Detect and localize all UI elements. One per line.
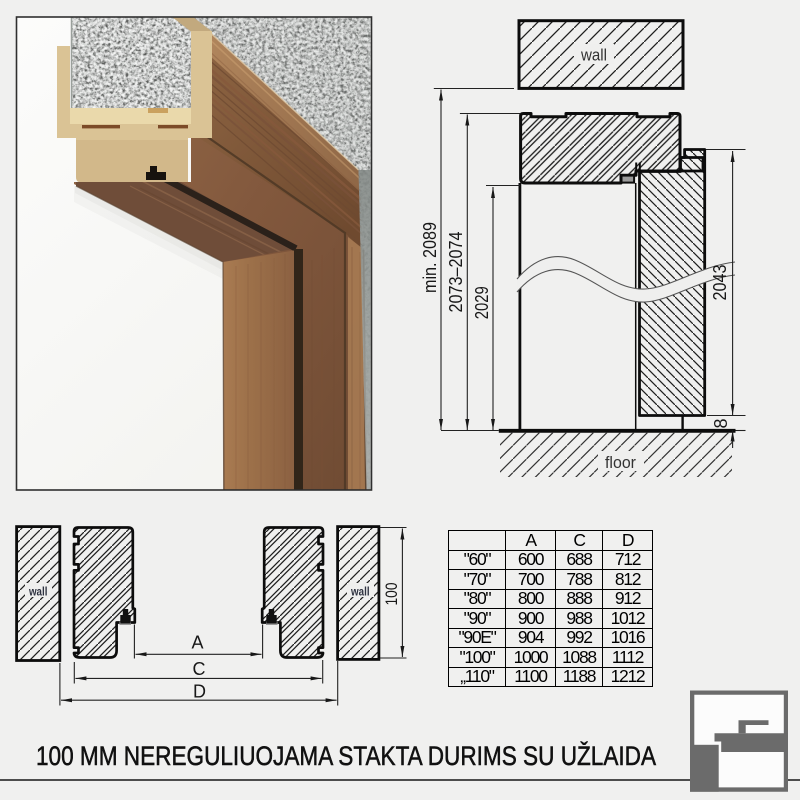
svg-text:wall: wall	[28, 586, 47, 598]
svg-text:A: A	[191, 633, 203, 653]
svg-text:2029: 2029	[472, 286, 492, 319]
svg-text:C: C	[193, 659, 206, 679]
svg-text:wall: wall	[350, 586, 369, 598]
svg-text:wall: wall	[580, 47, 607, 65]
svg-text:2073–2074: 2073–2074	[446, 232, 466, 313]
svg-text:2043: 2043	[710, 265, 730, 301]
svg-text:min. 2089: min. 2089	[420, 222, 440, 293]
svg-text:100: 100	[383, 583, 401, 606]
svg-text:D: D	[193, 682, 206, 702]
svg-text:8: 8	[711, 418, 731, 428]
svg-text:floor: floor	[605, 454, 636, 472]
